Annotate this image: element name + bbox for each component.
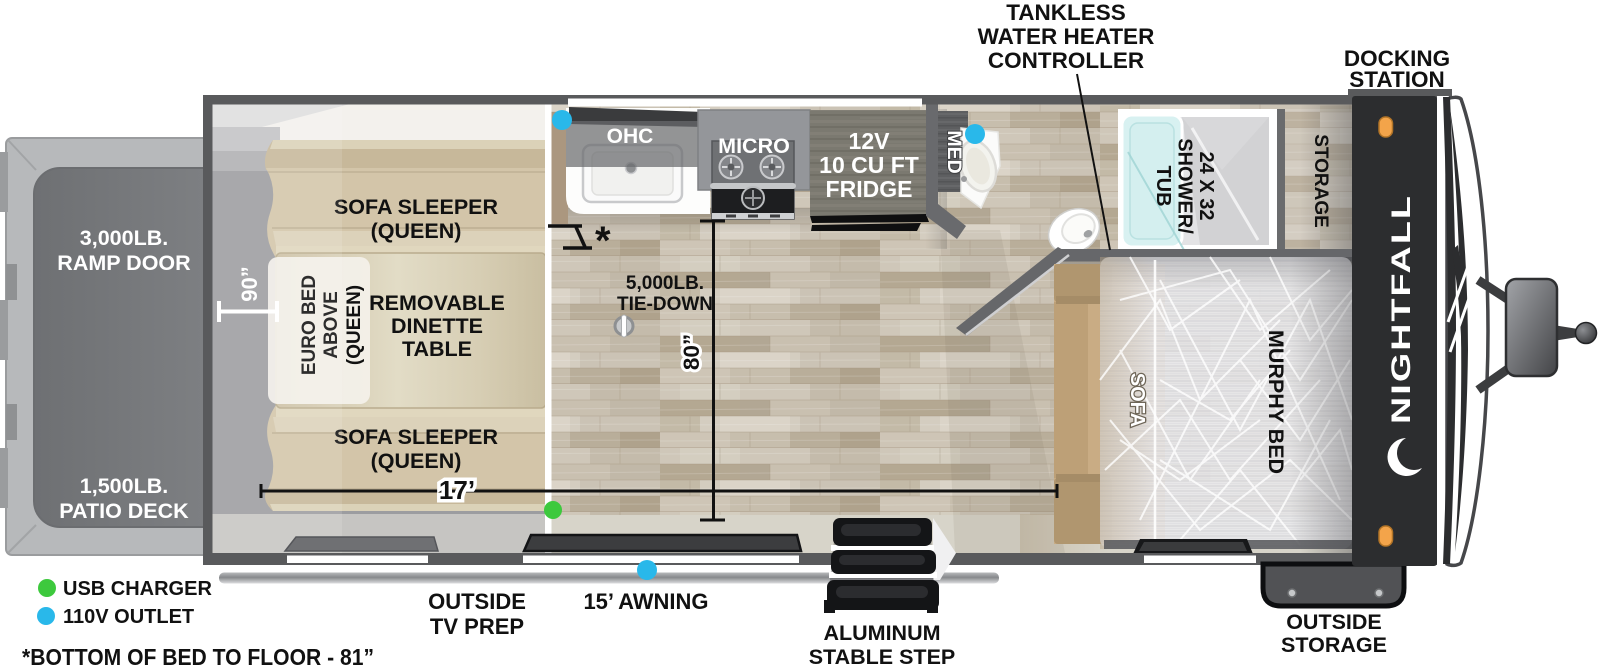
svg-text:SOFA SLEEPER: SOFA SLEEPER <box>334 195 499 219</box>
svg-text:(QUEEN): (QUEEN) <box>344 285 365 365</box>
svg-text:(QUEEN): (QUEEN) <box>371 219 462 243</box>
svg-text:STORAGE: STORAGE <box>1281 633 1387 657</box>
svg-text:15’ AWNING: 15’ AWNING <box>583 589 708 614</box>
svg-text:OUTSIDE: OUTSIDE <box>1286 610 1382 634</box>
svg-text:TIE-DOWN: TIE-DOWN <box>617 294 713 315</box>
svg-text:MED: MED <box>943 130 965 173</box>
svg-text:90”: 90” <box>237 266 262 301</box>
svg-text:ALUMINUM: ALUMINUM <box>823 621 940 645</box>
svg-text:STABLE STEP: STABLE STEP <box>809 645 956 667</box>
svg-text:5,000LB.: 5,000LB. <box>626 273 704 294</box>
svg-text:SOFA SLEEPER: SOFA SLEEPER <box>334 425 499 449</box>
svg-text:110V OUTLET: 110V OUTLET <box>63 606 194 628</box>
svg-text:3,000LB.: 3,000LB. <box>80 226 168 250</box>
svg-text:80”: 80” <box>679 334 704 370</box>
svg-text:*: * <box>595 219 611 263</box>
svg-text:SOFA: SOFA <box>1126 373 1148 427</box>
svg-text:(QUEEN): (QUEEN) <box>371 449 462 473</box>
svg-text:17’: 17’ <box>439 475 475 505</box>
svg-text:OHC: OHC <box>607 125 654 148</box>
svg-text:OUTSIDE: OUTSIDE <box>428 589 526 614</box>
svg-text:12V: 12V <box>849 128 891 154</box>
svg-text:NIGHTFALL: NIGHTFALL <box>1386 194 1416 424</box>
svg-text:MURPHY BED: MURPHY BED <box>1264 330 1288 474</box>
svg-text:STORAGE: STORAGE <box>1310 134 1331 228</box>
svg-text:*BOTTOM OF BED TO FLOOR - 81”: *BOTTOM OF BED TO FLOOR - 81” <box>22 644 374 667</box>
svg-text:CONTROLLER: CONTROLLER <box>988 48 1144 73</box>
svg-text:WATER HEATER: WATER HEATER <box>978 24 1155 49</box>
svg-text:1,500LB.: 1,500LB. <box>80 474 168 498</box>
svg-text:TANKLESS: TANKLESS <box>1006 0 1126 25</box>
svg-text:PATIO DECK: PATIO DECK <box>59 499 189 523</box>
svg-text:FRIDGE: FRIDGE <box>826 176 913 202</box>
svg-text:MICRO: MICRO <box>718 134 790 158</box>
svg-text:REMOVABLE: REMOVABLE <box>369 291 505 315</box>
svg-text:TV PREP: TV PREP <box>430 614 524 639</box>
svg-text:RAMP DOOR: RAMP DOOR <box>57 251 191 275</box>
svg-text:DINETTE: DINETTE <box>391 314 483 338</box>
svg-text:10 CU FT: 10 CU FT <box>819 152 919 178</box>
svg-text:STATION: STATION <box>1349 67 1444 92</box>
svg-text:TABLE: TABLE <box>402 337 472 361</box>
svg-text:USB CHARGER: USB CHARGER <box>63 578 212 600</box>
